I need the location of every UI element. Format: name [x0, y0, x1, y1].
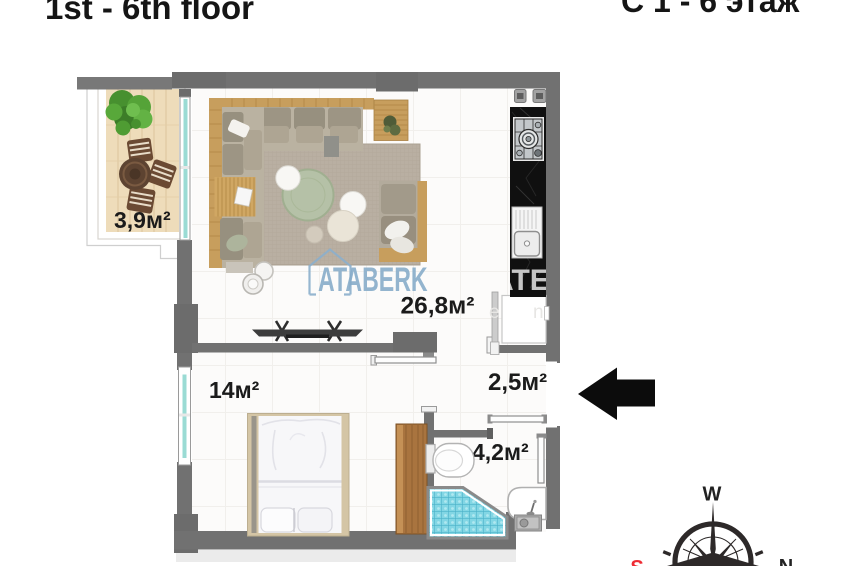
svg-text:N: N	[779, 556, 793, 566]
svg-text:e: e	[489, 302, 500, 323]
svg-text:С 1 - 6 этаж: С 1 - 6 этаж	[621, 0, 800, 19]
svg-text:n: n	[533, 302, 544, 323]
svg-text:S: S	[630, 557, 643, 566]
svg-text:26,8м²: 26,8м²	[401, 293, 475, 320]
svg-text:4,2м²: 4,2м²	[472, 439, 529, 465]
svg-text:2,5м²: 2,5м²	[488, 369, 547, 396]
svg-text:W: W	[703, 484, 722, 506]
svg-text:14м²: 14м²	[209, 377, 260, 403]
svg-text:1st - 6th floor: 1st - 6th floor	[45, 0, 254, 26]
